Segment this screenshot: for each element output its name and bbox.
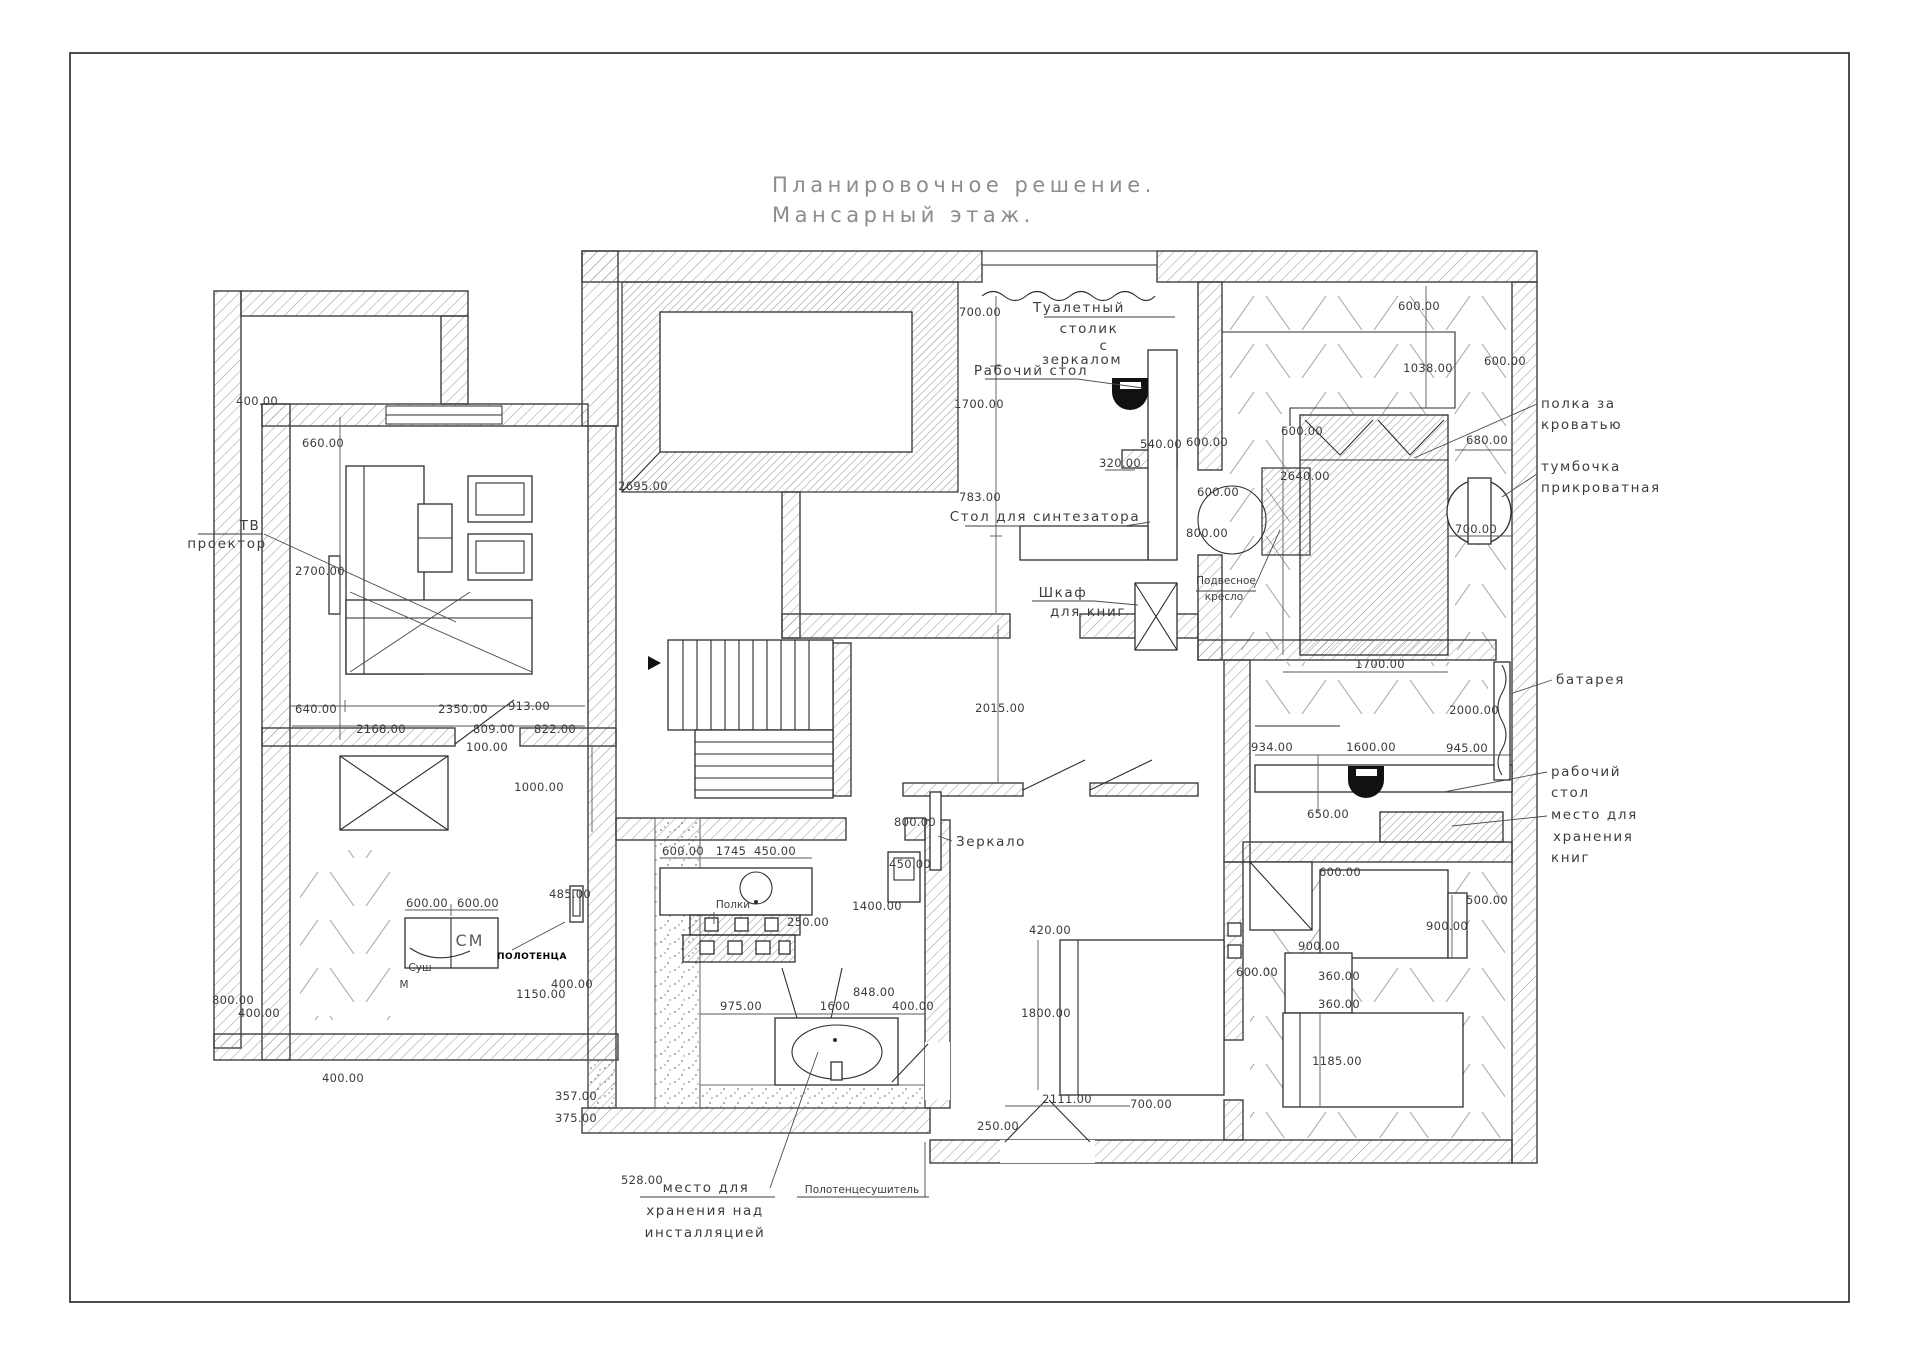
dimension-text: 660.00 [302, 436, 344, 450]
label-bookcase: для книг [1050, 604, 1126, 620]
dimension-text: 800.00 [894, 815, 936, 829]
dimension-text: 1800.00 [1021, 1006, 1071, 1020]
dimension-text: 600.00 [1186, 435, 1228, 449]
dimension-text: 1038.00 [1403, 361, 1453, 375]
label-work-desk: рабочий [1551, 764, 1621, 780]
label-dressing-table: столик [1060, 321, 1119, 337]
dimension-text: 800.00 [212, 993, 254, 1007]
dimension-text: 2350.00 [438, 702, 488, 716]
dimension-text: 400.00 [238, 1006, 280, 1020]
label-shelves: Полки [716, 899, 750, 911]
dimension-text: 1700.00 [1355, 657, 1405, 671]
drawing-title-line1: Планировочное решение. [772, 173, 1156, 197]
dimension-text: 360.00 [1318, 997, 1360, 1011]
label-dryer: Суш [408, 962, 431, 974]
dimension-text: 357.00 [555, 1089, 597, 1103]
dimension-text: 2695.00 [618, 479, 668, 493]
dimension-text: 600.00 [1484, 354, 1526, 368]
label-book-storage: место для [1551, 807, 1638, 823]
dimension-text: 600.00 [1319, 865, 1361, 879]
label-dressing-table: Туалетный [1032, 300, 1125, 316]
dimension-text: 600.00 [406, 896, 448, 910]
dimension-text: 640.00 [295, 702, 337, 716]
floor-plan-canvas: Планировочное решение. Мансарный этаж. [0, 0, 1920, 1357]
label-storage-installation: место для [663, 1180, 750, 1196]
dimension-text: 650.00 [1307, 807, 1349, 821]
dimension-text: 1400.00 [852, 899, 902, 913]
dimension-text: 1000.00 [514, 780, 564, 794]
dimension-text: 900.00 [1298, 939, 1340, 953]
mirror [930, 792, 941, 870]
dimension-text: 600.00 [457, 896, 499, 910]
dimension-text: 700.00 [1455, 522, 1497, 536]
dimension-text: 2015.00 [975, 701, 1025, 715]
label-dryer: М [399, 979, 408, 991]
dimension-text: 934.00 [1251, 740, 1293, 754]
dimension-text: 848.00 [853, 985, 895, 999]
living-room [329, 466, 532, 674]
dimension-text: 913.00 [508, 699, 550, 713]
dimension-text: 809.00 [473, 722, 515, 736]
label-tv-projector: проектор [187, 536, 267, 552]
dimension-text: 1150.00 [516, 987, 566, 1001]
bed-2 [1060, 940, 1224, 1095]
dimension-text: 528.00 [621, 1173, 663, 1187]
dressing-table [1148, 350, 1177, 560]
label-storage-installation: хранения над [646, 1203, 764, 1219]
dimension-text: 783.00 [959, 490, 1001, 504]
dimension-text: 540.00 [1140, 437, 1182, 451]
label-shelf-behind-bed: кроватью [1541, 417, 1622, 433]
dimension-text: 375.00 [555, 1111, 597, 1125]
dimension-text: 600.00 [1236, 965, 1278, 979]
book-storage [1380, 812, 1503, 842]
dimension-text: 1745 [716, 844, 746, 858]
dimension-text: 500.00 [1466, 893, 1508, 907]
dimension-text: 600.00 [1398, 299, 1440, 313]
dimension-text: 600.00 [1281, 424, 1323, 438]
label-storage-installation: инсталляцией [645, 1225, 766, 1241]
label-towel-dryer: Полотенцесушитель [805, 1184, 919, 1196]
dimension-text: 450.00 [889, 857, 931, 871]
label-book-storage: хранения [1553, 829, 1634, 845]
label-hanging-chair: Подвесное [1196, 575, 1256, 587]
dimension-text: 1185.00 [1312, 1054, 1362, 1068]
dimension-text: 900.00 [1426, 919, 1468, 933]
dimension-text: 360.00 [1318, 969, 1360, 983]
floor-plan-page: Планировочное решение. Мансарный этаж. [0, 0, 1920, 1357]
dimension-text: 700.00 [1130, 1097, 1172, 1111]
dimension-text: 100.00 [466, 740, 508, 754]
dimension-text: 800.00 [1186, 526, 1228, 540]
label-work-table: Рабочий стол [974, 363, 1088, 379]
label-shelf-behind-bed: полка за [1541, 396, 1616, 412]
label-nightstand: прикроватная [1541, 480, 1661, 496]
dimension-text: 2168.00 [356, 722, 406, 736]
label-mirror: Зеркало [956, 834, 1026, 850]
dimension-text: 400.00 [236, 394, 278, 408]
dimension-text: 450.00 [754, 844, 796, 858]
dimension-text: 320.00 [1099, 456, 1141, 470]
dimension-text: 2111.00 [1042, 1092, 1092, 1106]
slope-storage-frame [622, 282, 958, 492]
dimension-text: 945.00 [1446, 741, 1488, 755]
drawing-title-line2: Мансарный этаж. [772, 203, 1035, 227]
dimension-text: 600.00 [1197, 485, 1239, 499]
dimension-text: 400.00 [892, 999, 934, 1013]
direction-arrow-icon [648, 656, 661, 670]
label-hanging-chair: кресло [1205, 591, 1243, 603]
dimension-text: 485.00 [549, 887, 591, 901]
dimension-text: 1600 [820, 999, 850, 1013]
dimension-text: 250.00 [977, 1119, 1019, 1133]
dimension-text: 250.00 [787, 915, 829, 929]
dimension-text: 822.00 [534, 722, 576, 736]
sofa-chaise [346, 600, 532, 674]
dimension-text: 2000.00 [1449, 703, 1499, 717]
label-washing-machine: СМ [456, 931, 485, 950]
label-towels: ПОЛОТЕНЦА [497, 952, 567, 962]
dimension-text: 2640.00 [1280, 469, 1330, 483]
synthesizer-table [1020, 526, 1148, 560]
bed [1283, 1013, 1463, 1107]
dimension-text: 680.00 [1466, 433, 1508, 447]
dimension-text: 1600.00 [1346, 740, 1396, 754]
dimension-text: 2700.00 [295, 564, 345, 578]
staircase [648, 640, 833, 798]
label-bookcase: Шкаф [1039, 585, 1088, 601]
label-synthesizer-table: Стол для синтезатора [950, 509, 1140, 525]
label-work-desk: стол [1551, 785, 1590, 801]
dimension-text: 420.00 [1029, 923, 1071, 937]
bed [1300, 415, 1448, 655]
dimension-text: 975.00 [720, 999, 762, 1013]
dimension-text: 600.00 [662, 844, 704, 858]
dimension-text: 400.00 [322, 1071, 364, 1085]
label-radiator: батарея [1556, 672, 1625, 688]
label-nightstand: тумбочка [1541, 459, 1621, 475]
dimension-text: 1700.00 [954, 397, 1004, 411]
label-book-storage: книг [1551, 850, 1590, 866]
label-tv-projector: ТВ [239, 518, 261, 534]
dimension-text: 700.00 [959, 305, 1001, 319]
